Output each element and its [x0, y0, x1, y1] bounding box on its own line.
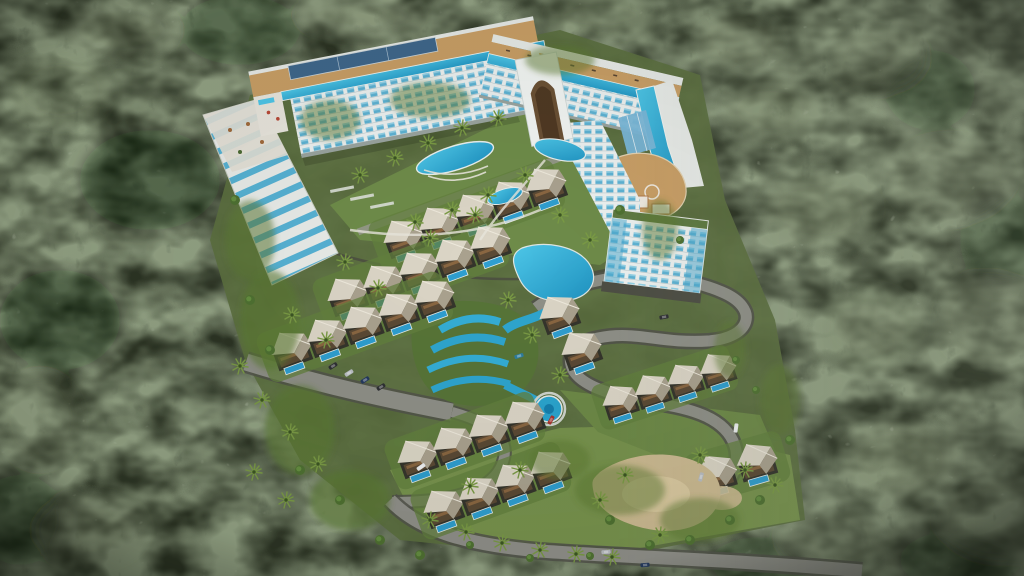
resort-aerial-rendering: Aerial bird's-eye architectural renderin…	[0, 0, 1024, 576]
aerial-render-stage: Aerial bird's-eye architectural renderin…	[0, 0, 1024, 576]
vignette-overlay	[0, 0, 1024, 576]
